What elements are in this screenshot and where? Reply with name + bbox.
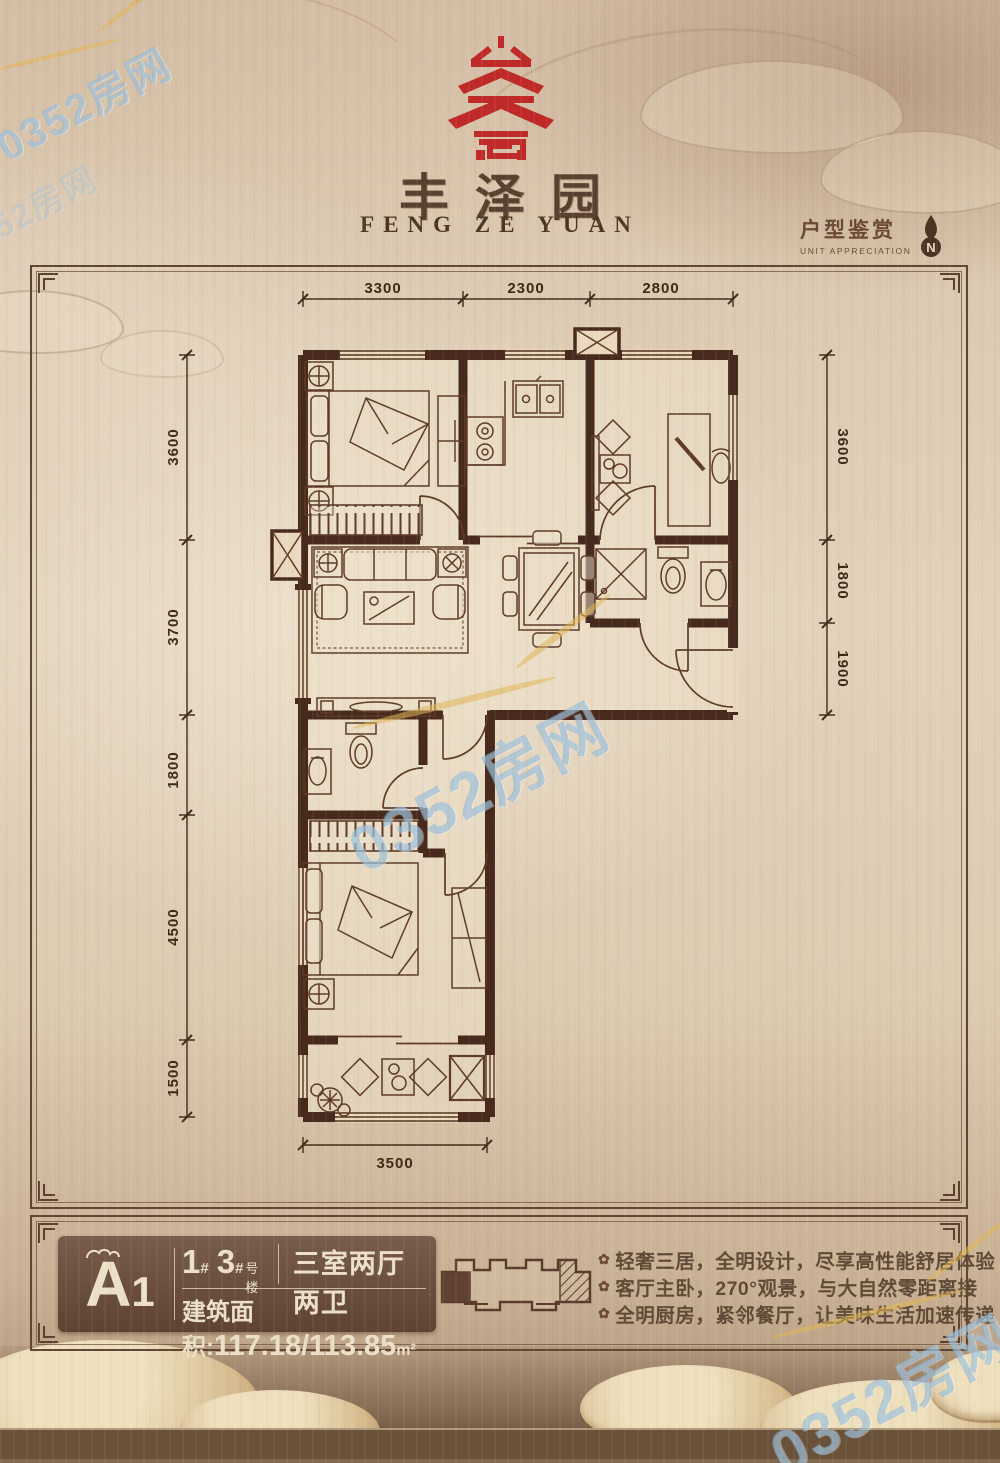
unit-info-panel: A1 1# 3# 号楼 三室两厅两卫 建筑面积:117.18/113.85m² xyxy=(58,1236,436,1332)
radiator xyxy=(310,821,418,851)
unit-code: A1 xyxy=(72,1240,168,1328)
svg-text:1800: 1800 xyxy=(834,562,851,599)
unit-digit: 1 xyxy=(131,1268,154,1315)
entry-opening xyxy=(727,648,739,712)
building-number: 3 xyxy=(217,1243,235,1281)
feature-item: ✿轻奢三居，全明设计，尽享高性能舒居体验 xyxy=(598,1246,970,1273)
hatched-unit xyxy=(560,1260,590,1302)
svg-text:4500: 4500 xyxy=(165,908,182,945)
area-value: 117.18/113.85 xyxy=(214,1330,396,1362)
unit-letter: A xyxy=(85,1248,131,1320)
feature-item: ✿全明厨房，紧邻餐厅，让美味生活加速传递 xyxy=(598,1300,970,1327)
poster-page: 丰泽园 FENG ZE YUAN 户型鉴赏 UNIT APPRECIATION … xyxy=(0,0,1000,1463)
flower-bullet-icon: ✿ xyxy=(598,1251,610,1268)
divider xyxy=(278,1244,279,1284)
svg-text:2800: 2800 xyxy=(642,280,679,297)
feature-item: ✿客厅主卧，270°观景，与大自然零距离接 xyxy=(598,1273,970,1300)
unit-a1-highlight xyxy=(442,1272,470,1302)
svg-text:1500: 1500 xyxy=(165,1059,182,1096)
svg-text:2300: 2300 xyxy=(507,280,544,297)
flower-bullet-icon: ✿ xyxy=(598,1305,610,1322)
building-row: 1# 3# 号楼 三室两厅两卫 xyxy=(182,1242,426,1286)
svg-text:3700: 3700 xyxy=(165,608,182,645)
svg-text:3500: 3500 xyxy=(376,1155,413,1172)
svg-text:1800: 1800 xyxy=(165,751,182,788)
svg-text:1900: 1900 xyxy=(834,650,851,687)
flower-bullet-icon: ✿ xyxy=(598,1278,610,1295)
svg-text:3600: 3600 xyxy=(165,428,182,465)
area-unit: m² xyxy=(396,1342,416,1359)
divider xyxy=(174,1248,175,1320)
feature-list: ✿轻奢三居，全明设计，尽享高性能舒居体验 ✿客厅主卧，270°观景，与大自然零距… xyxy=(598,1246,970,1327)
radiator xyxy=(310,505,422,535)
building-suffix: 号楼 xyxy=(245,1258,266,1296)
layout-type: 三室两厅两卫 xyxy=(293,1242,426,1320)
svg-text:3600: 3600 xyxy=(834,428,851,465)
svg-text:3300: 3300 xyxy=(364,280,401,297)
building-footprint-icon xyxy=(438,1250,594,1326)
building-number: 1 xyxy=(182,1243,200,1281)
